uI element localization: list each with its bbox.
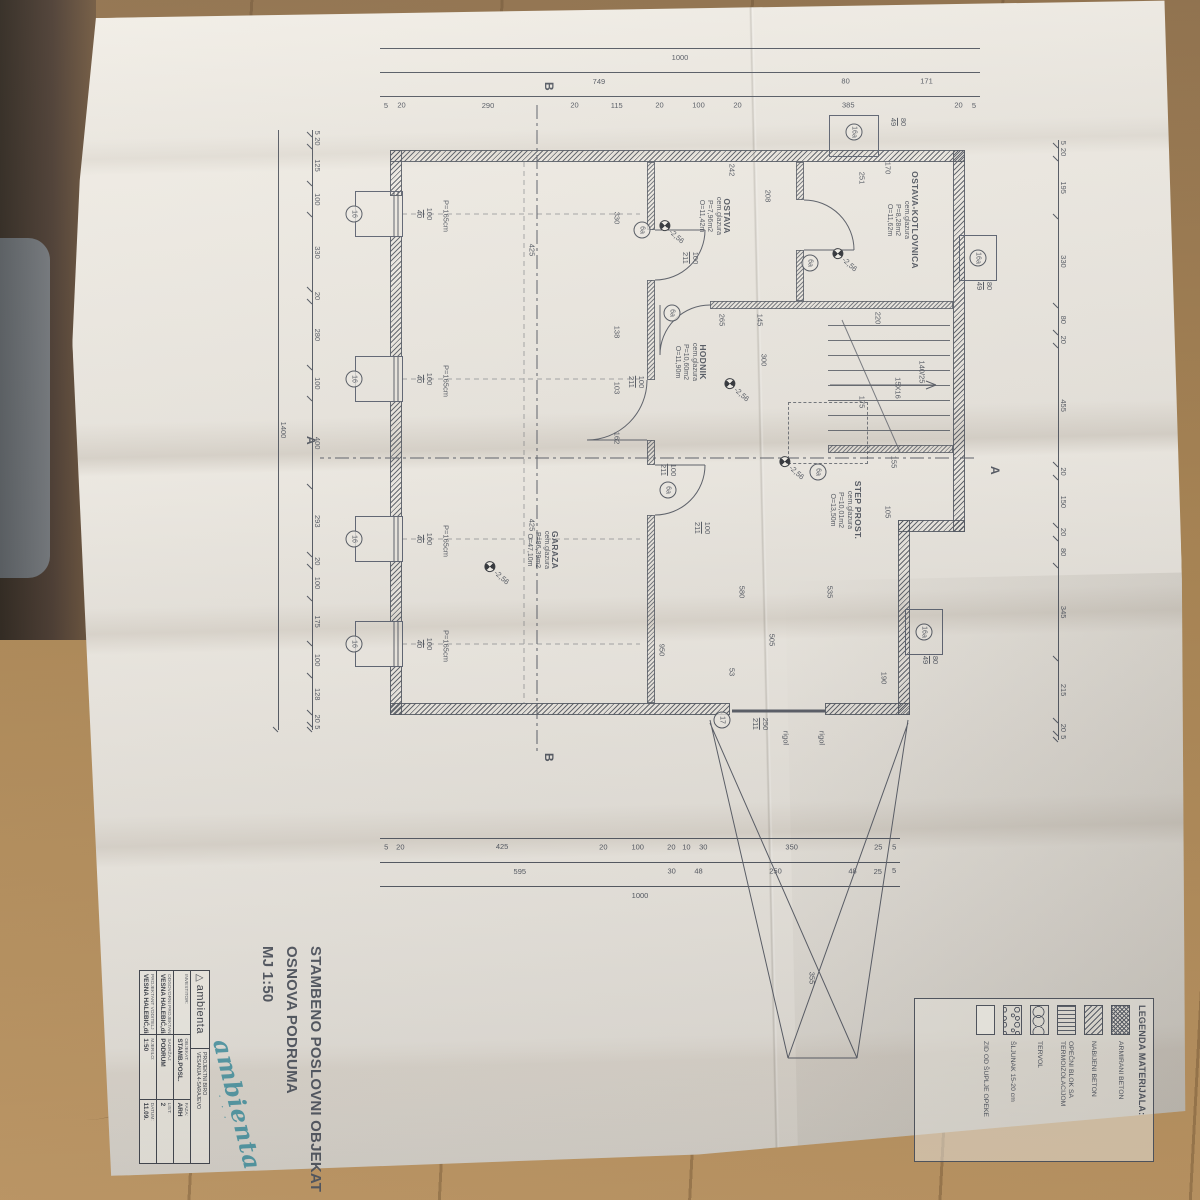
dim-text: 162 xyxy=(613,432,622,445)
field-sadrzaj: SADRŽAJ: PODRUM xyxy=(157,1035,173,1099)
dim-text: 300 xyxy=(760,354,769,367)
section-marker-a: A xyxy=(988,466,1002,475)
dim-text: 10040 xyxy=(415,533,433,546)
dim-text: P=165cm xyxy=(442,365,451,397)
dim-text: P=165cm xyxy=(442,200,451,232)
field-list: LIST: 2 xyxy=(157,1100,173,1163)
legend-item: NABIJENI BETON xyxy=(1084,1005,1103,1155)
fabric-object xyxy=(0,238,50,578)
dim-text: 190 xyxy=(880,672,889,685)
dim-text: 138 xyxy=(613,326,622,339)
dim-text: 100211 xyxy=(659,464,677,477)
dim-text: 15X16 xyxy=(894,377,903,399)
reference-tag: 17 xyxy=(714,712,731,729)
hatch-crosshatch-icon xyxy=(1111,1005,1130,1035)
reference-tag: 16a xyxy=(916,624,933,641)
dim-text: 535 xyxy=(826,586,835,599)
dim-text: 145 xyxy=(756,314,765,327)
dim-text: 100211 xyxy=(693,522,711,535)
dim-text: 53 xyxy=(728,668,737,676)
legend-heading: LEGENDA MATERIJALA: xyxy=(1137,1005,1147,1155)
legend-item: TERVOL xyxy=(1030,1005,1049,1155)
photo-scene: 1000 17180749 520385201002011520290205 5… xyxy=(0,0,1200,1200)
title-block: △ ambienta PROJEKTNI BIRO VESANJA 4-SARA… xyxy=(139,970,210,1164)
room-label-garaza: GARAZA cem.glazura P=86,39m2 O=47,10m xyxy=(524,531,560,569)
reference-tag: 6a xyxy=(660,482,677,499)
dim-text: rigol xyxy=(782,731,791,745)
title-line: OSNOVA PODRUMA xyxy=(283,946,300,1166)
field-investitor: INVESTITOR: xyxy=(174,971,190,1035)
dim-text: 175 xyxy=(858,396,867,409)
dim-text: 355 xyxy=(808,972,817,985)
stair-cut-line xyxy=(842,320,900,452)
legend-item: OPEČNI BLOK SA TERMOIZOLACIJOM xyxy=(1057,1005,1076,1155)
dim-text: 505 xyxy=(768,634,777,647)
room-label-step-prost: STEP PROST. cem.glazura P=10,01m2 O=13,5… xyxy=(827,481,863,539)
room-label-ostava: OSTAVA cem.glazura P=7,96m2 O=11,42m xyxy=(696,197,732,235)
section-marker-b: B xyxy=(542,753,556,762)
dim-text: 155 xyxy=(890,456,899,469)
dim-text: P=165cm xyxy=(442,630,451,662)
hatch-wave-icon xyxy=(1030,1005,1049,1035)
dim-text: rigol xyxy=(818,731,827,745)
drawing-title: STAMBENO POSLOVNI OBJEKAT OSNOVA PODRUMA… xyxy=(252,946,324,1166)
dim-text: 580 xyxy=(738,586,747,599)
dim-text: 330 xyxy=(613,212,622,225)
reference-tag: 16 xyxy=(346,636,363,653)
dim-text: 950 xyxy=(658,644,667,657)
dim-text: 250211 xyxy=(751,718,769,731)
section-marker-a: A xyxy=(304,436,318,445)
hatch-diagonal-icon xyxy=(1084,1005,1103,1035)
reference-tag: 6a xyxy=(634,222,651,239)
dim-text: 10040 xyxy=(415,638,433,651)
hatch-gravel-icon xyxy=(1003,1005,1022,1035)
window-lines xyxy=(394,192,398,666)
dim-text: 220 xyxy=(874,312,883,325)
field-odgovorni-projektant: ODGOVORNI PROJEKTANT VESNA HALEBIĆ,dia xyxy=(157,971,173,1035)
hatch-empty-icon xyxy=(976,1005,995,1035)
reference-tag: 16a xyxy=(846,124,863,141)
dim-text: 10040 xyxy=(415,373,433,386)
dim-text: 8049 xyxy=(921,656,939,664)
reference-tag: 16a xyxy=(970,250,987,267)
ambienta-logo: △ ambienta xyxy=(191,971,209,1049)
legend-item: ZID OD ŠUPLJE OPEKE xyxy=(976,1005,995,1155)
field-projektant-voditelj: PROJEKTANT VODITELJ VESNA HALEBIĆ,dia xyxy=(140,971,156,1035)
dim-text: 8049 xyxy=(975,282,993,290)
field-faza: FAZA: ARH xyxy=(174,1100,190,1163)
field-mjerilo: MJERILO: 1:50 xyxy=(140,1035,156,1099)
title-line: MJ 1:50 xyxy=(259,946,276,1166)
dim-text: 103 xyxy=(613,382,622,395)
dim-text: P=165cm xyxy=(442,525,451,557)
dim-text: 105 xyxy=(884,506,893,519)
dim-text: 8049 xyxy=(889,118,907,126)
field-objekat: OBJEKAT: STAMB.POSL. xyxy=(174,1035,190,1099)
dim-text: 100211 xyxy=(627,376,645,389)
door-arc xyxy=(804,200,854,250)
section-marker-b: B xyxy=(542,82,556,91)
field-datum: DATUM: 11.09. xyxy=(140,1100,156,1163)
reference-tag: 16 xyxy=(346,206,363,223)
dim-text: 208 xyxy=(764,190,773,203)
dim-text: 265 xyxy=(718,314,727,327)
room-label-kotlovnica: OSTAVA-KOTLOVNICA cem.glazura P=8,28m2 O… xyxy=(884,171,920,269)
dim-text: 251 xyxy=(858,172,867,185)
room-label-hodnik: HODNIK cem.glazura P=10,60m2 O=11,90m xyxy=(672,343,708,381)
dim-text: 170 xyxy=(884,162,893,175)
dim-text: 10040 xyxy=(415,208,433,221)
ramp-lines xyxy=(710,720,908,1058)
drawing-layer: 1000 17180749 520385201002011520290205 5… xyxy=(60,20,1160,1180)
hatch-lines-icon xyxy=(1057,1005,1076,1035)
reference-tag: 16 xyxy=(346,531,363,548)
dim-text: 242 xyxy=(728,164,737,177)
reference-tag: 6a xyxy=(802,255,819,272)
dim-text: 425 xyxy=(528,519,537,532)
triangle-logo-icon: △ xyxy=(195,974,206,982)
reference-tag: 6a xyxy=(664,305,681,322)
dim-text: 140/25 xyxy=(918,361,927,384)
reference-tag: 6a xyxy=(810,464,827,481)
title-line: STAMBENO POSLOVNI OBJEKAT xyxy=(307,946,324,1166)
dim-text: 425 xyxy=(528,244,537,257)
dim-text: 100211 xyxy=(681,252,699,265)
materials-legend: LEGENDA MATERIJALA: ARMIRANI BETON NABIJ… xyxy=(914,998,1154,1162)
legend-item: ARMIRANI BETON xyxy=(1111,1005,1130,1155)
legend-item: ŠLJUNAK 15-20 cm xyxy=(1003,1005,1022,1155)
reference-tag: 16 xyxy=(346,371,363,388)
axis-lines xyxy=(402,162,640,703)
